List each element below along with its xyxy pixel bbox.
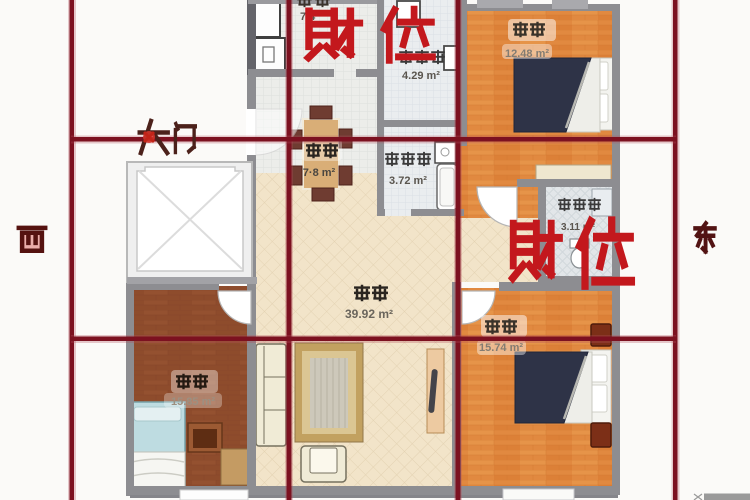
svg-text:7·8 m²: 7·8 m² [303, 167, 336, 179]
svg-text:12.48 m²: 12.48 m² [505, 48, 549, 60]
svg-text:4.29 m²: 4.29 m² [402, 70, 440, 82]
svg-text:15.74 m²: 15.74 m² [479, 342, 523, 354]
svg-text:15.85 m²: 15.85 m² [171, 396, 215, 408]
svg-text:3.72 m²: 3.72 m² [389, 175, 427, 187]
svg-text:39.92 m²: 39.92 m² [345, 307, 393, 321]
